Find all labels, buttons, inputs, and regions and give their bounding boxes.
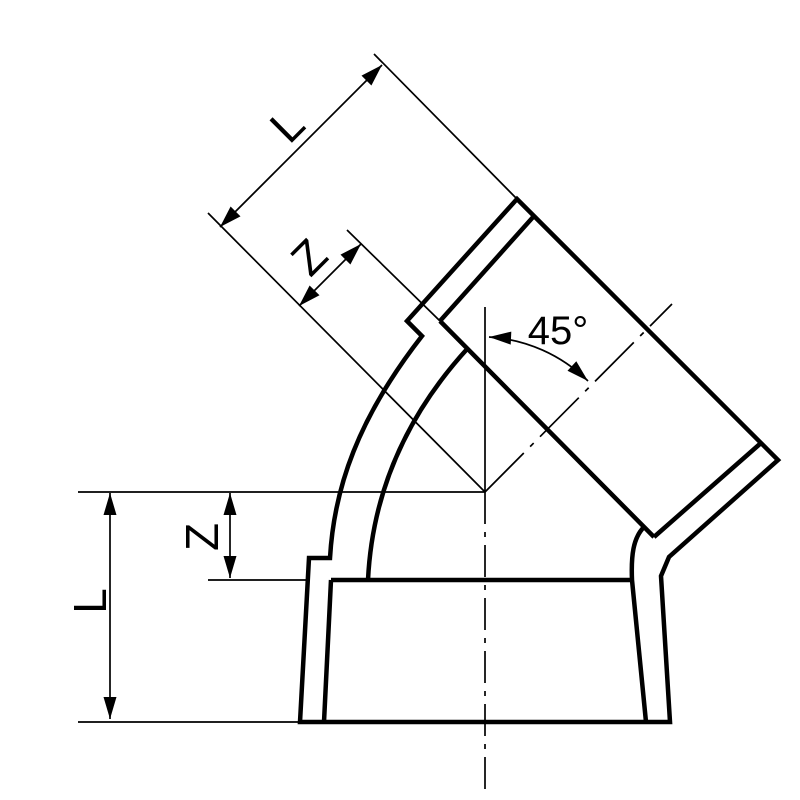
elbow-fitting-drawing: L Z L Z 45°	[0, 0, 800, 800]
label-Z-bottom: Z	[176, 523, 228, 551]
fitting-outer-outline	[300, 199, 778, 722]
arrowhead-angle-left	[489, 332, 511, 345]
drawing-canvas: L Z L Z 45°	[0, 0, 800, 800]
label-angle-45: 45°	[528, 309, 589, 353]
arrowhead-L-bottom-top	[104, 493, 117, 515]
arrowhead-angle-right	[568, 361, 589, 381]
arrowhead-Z-bottom-top	[224, 493, 237, 515]
label-L-bottom: L	[64, 588, 116, 614]
arrowhead-L-bottom-bottom	[104, 697, 117, 719]
reference-extension-lines	[78, 54, 517, 722]
label-L-diagonal: L	[260, 98, 315, 153]
fitting-inner-lines	[324, 216, 761, 722]
arrowhead-Z-bottom-bottom	[224, 556, 237, 578]
